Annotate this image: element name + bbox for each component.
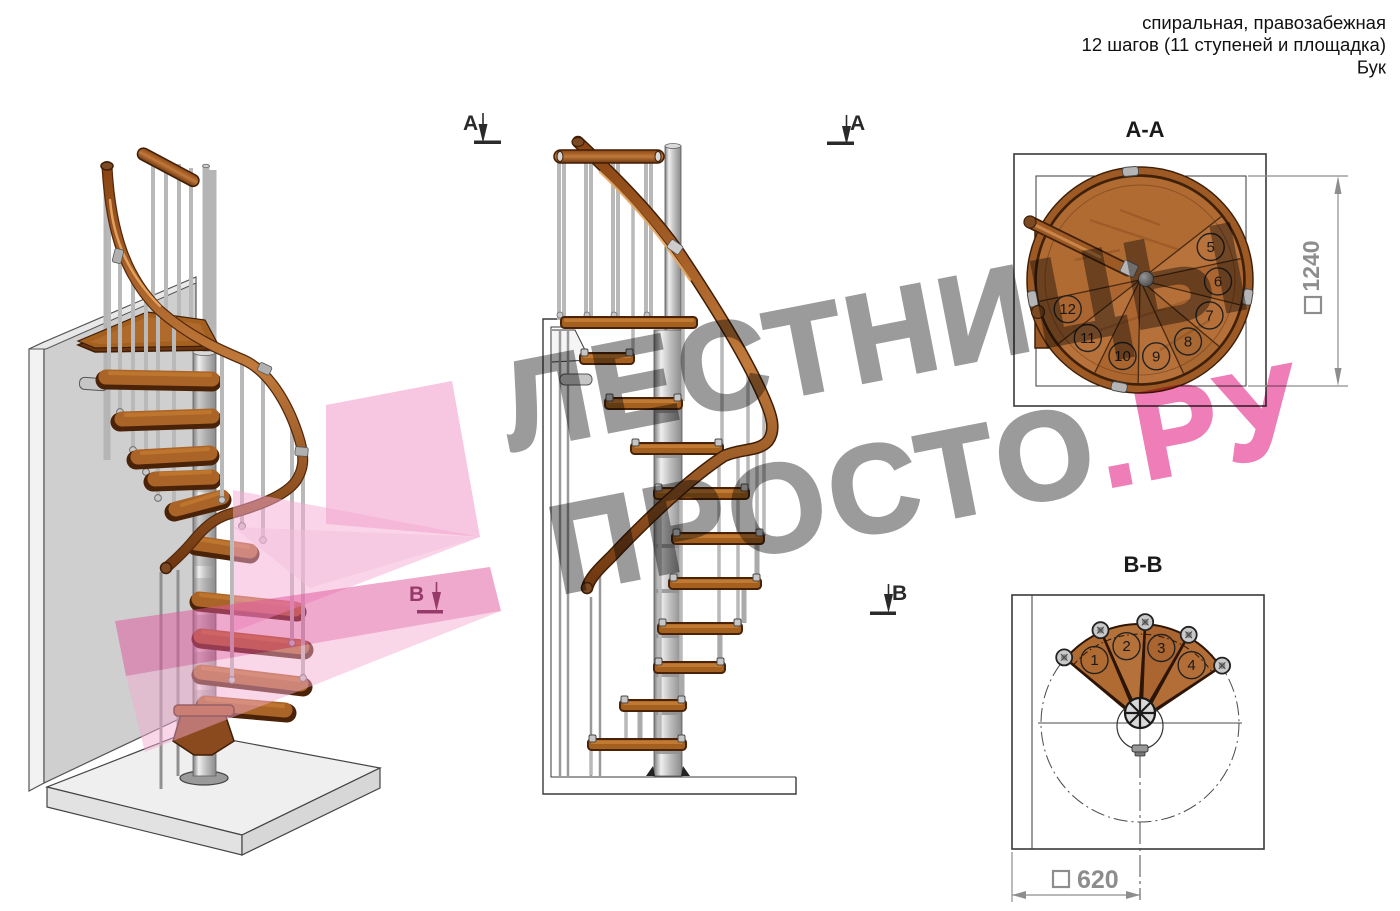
svg-text:1240: 1240 — [1298, 240, 1324, 291]
svg-text:В: В — [892, 582, 907, 605]
svg-text:Бук: Бук — [1357, 57, 1387, 78]
svg-text:2: 2 — [1122, 638, 1130, 655]
svg-text:А-А: А-А — [1125, 117, 1164, 142]
svg-text:спиральная, правозабежная: спиральная, правозабежная — [1142, 12, 1386, 33]
svg-text:А: А — [463, 112, 478, 135]
svg-text:А: А — [850, 112, 865, 135]
svg-text:12 шагов (11 ступеней и площад: 12 шагов (11 ступеней и площадка) — [1082, 34, 1386, 55]
svg-text:4: 4 — [1187, 657, 1195, 674]
svg-text:620: 620 — [1077, 866, 1119, 894]
svg-text:1: 1 — [1090, 652, 1098, 669]
svg-text:В-В: В-В — [1123, 552, 1162, 577]
svg-text:3: 3 — [1157, 640, 1165, 657]
